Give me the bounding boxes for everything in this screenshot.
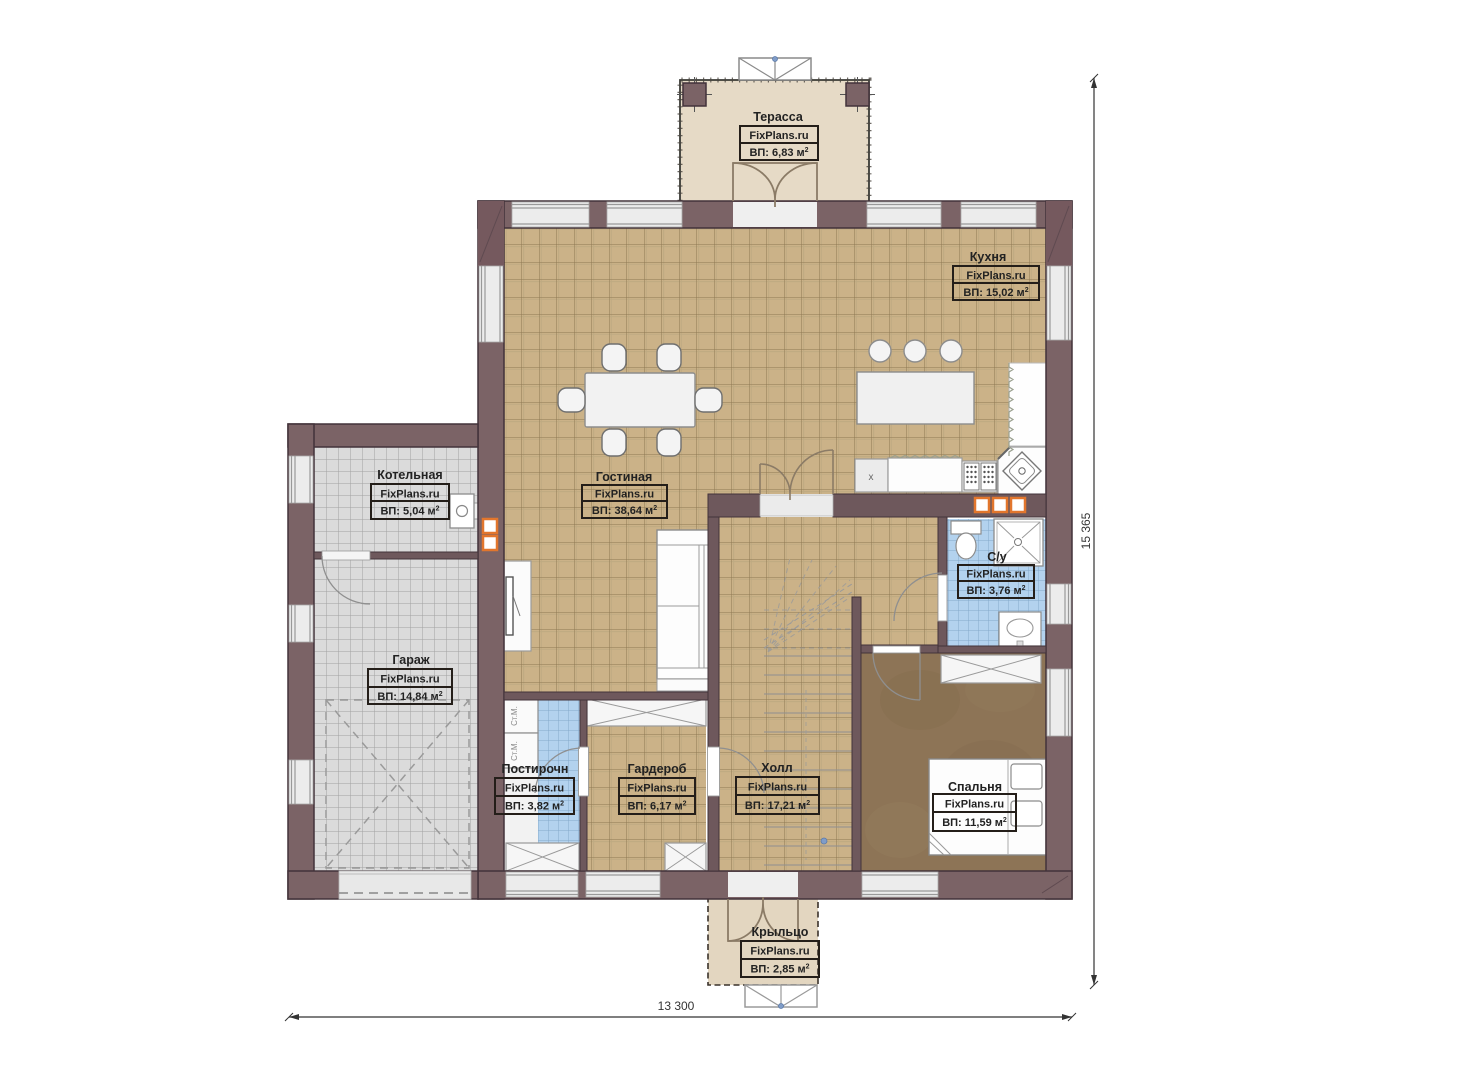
svg-text:FixPlans.ru: FixPlans.ru — [505, 783, 564, 795]
svg-text:ВП: 15,02 м2: ВП: 15,02 м2 — [963, 287, 1028, 299]
svg-text:x: x — [869, 472, 874, 483]
svg-text:Котельная: Котельная — [377, 468, 442, 482]
svg-text:FixPlans.ru: FixPlans.ru — [966, 270, 1025, 282]
svg-text:Гараж: Гараж — [392, 653, 429, 667]
svg-text:FixPlans.ru: FixPlans.ru — [595, 489, 654, 501]
svg-text:Холл: Холл — [761, 761, 792, 775]
svg-text:ВП: 3,76 м2: ВП: 3,76 м2 — [966, 585, 1025, 597]
svg-text:Ст.М.: Ст.М. — [510, 706, 519, 726]
svg-text:FixPlans.ru: FixPlans.ru — [966, 569, 1025, 581]
svg-text:FixPlans.ru: FixPlans.ru — [945, 799, 1004, 811]
svg-text:FixPlans.ru: FixPlans.ru — [750, 946, 809, 958]
svg-text:Спальня: Спальня — [948, 780, 1002, 794]
svg-text:FixPlans.ru: FixPlans.ru — [627, 783, 686, 795]
svg-text:FixPlans.ru: FixPlans.ru — [380, 489, 439, 501]
svg-text:Крыльцо: Крыльцо — [752, 925, 809, 939]
svg-text:FixPlans.ru: FixPlans.ru — [749, 130, 808, 142]
svg-text:Терасса: Терасса — [753, 110, 804, 124]
svg-text:15 365: 15 365 — [1079, 512, 1093, 549]
svg-text:Гардероб: Гардероб — [627, 762, 686, 776]
svg-text:Гостиная: Гостиная — [596, 470, 653, 484]
svg-text:ВП: 2,85 м2: ВП: 2,85 м2 — [750, 964, 809, 976]
svg-text:FixPlans.ru: FixPlans.ru — [748, 782, 807, 794]
svg-text:ВП: 6,83 м2: ВП: 6,83 м2 — [749, 147, 808, 159]
svg-text:ВП: 14,84 м2: ВП: 14,84 м2 — [377, 691, 442, 703]
svg-text:ВП: 38,64 м2: ВП: 38,64 м2 — [592, 505, 657, 517]
svg-text:С/у: С/у — [987, 550, 1007, 564]
svg-text:Кухня: Кухня — [970, 250, 1007, 264]
svg-text:ВП: 6,17 м2: ВП: 6,17 м2 — [627, 801, 686, 813]
svg-text:ВП: 3,82 м2: ВП: 3,82 м2 — [505, 801, 564, 813]
svg-text:FixPlans.ru: FixPlans.ru — [380, 674, 439, 686]
svg-text:Постирочн: Постирочн — [502, 762, 569, 776]
svg-text:13 300: 13 300 — [658, 999, 695, 1013]
svg-text:ВП: 11,59 м2: ВП: 11,59 м2 — [942, 817, 1007, 829]
svg-text:ВП: 17,21 м2: ВП: 17,21 м2 — [745, 800, 810, 812]
svg-text:ВП: 5,04 м2: ВП: 5,04 м2 — [380, 506, 439, 518]
svg-text:Ст.М.: Ст.М. — [510, 741, 519, 761]
